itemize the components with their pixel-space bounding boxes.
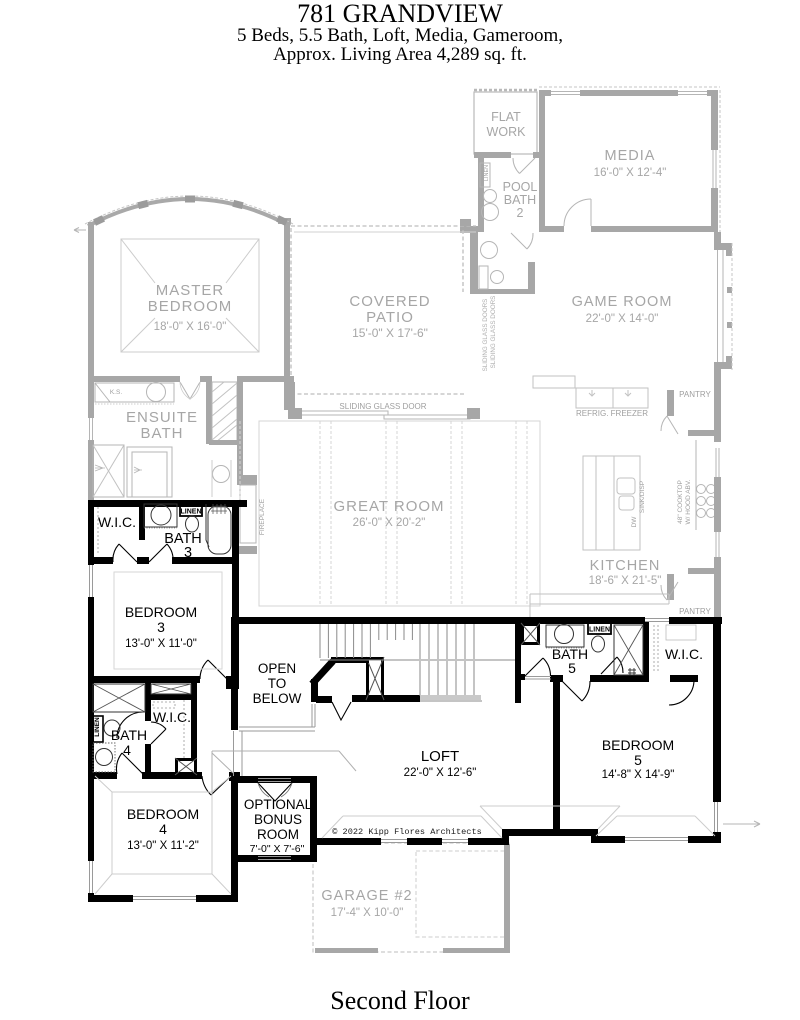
svg-text:BONUS: BONUS xyxy=(254,812,302,827)
svg-text:BEDROOM: BEDROOM xyxy=(148,298,233,315)
svg-text:22'-0" X 12'-6": 22'-0" X 12'-6" xyxy=(404,767,477,779)
svg-text:PANTRY: PANTRY xyxy=(679,390,711,399)
svg-text:BEDROOM: BEDROOM xyxy=(602,737,674,753)
svg-text:5: 5 xyxy=(634,752,642,768)
svg-text:SLIDING GLASS DOORS: SLIDING GLASS DOORS xyxy=(482,299,489,372)
svg-text:5 Beds, 5.5 Bath, Loft, Media,: 5 Beds, 5.5 Bath, Loft, Media, Gameroom, xyxy=(237,25,563,46)
svg-text:16'-0" X 12'-4": 16'-0" X 12'-4" xyxy=(594,167,667,179)
svg-text:OPTIONAL: OPTIONAL xyxy=(244,797,313,812)
svg-text:13'-0" X 11'-0": 13'-0" X 11'-0" xyxy=(125,638,197,650)
svg-text:BATH: BATH xyxy=(141,425,184,442)
svg-text:SLIDING GLASS DOORS: SLIDING GLASS DOORS xyxy=(490,296,497,369)
svg-text:26'-0" X 20'-2": 26'-0" X 20'-2" xyxy=(353,517,426,529)
svg-text:2: 2 xyxy=(517,206,524,220)
svg-text:W.I.C.: W.I.C. xyxy=(665,646,703,662)
svg-text:GREAT ROOM: GREAT ROOM xyxy=(333,498,444,515)
svg-text:SLIDING GLASS DOOR: SLIDING GLASS DOOR xyxy=(339,402,426,411)
svg-text:LINEN: LINEN xyxy=(94,717,101,737)
svg-text:4: 4 xyxy=(123,742,131,758)
svg-text:KITCHEN: KITCHEN xyxy=(590,558,661,574)
svg-text:ROOM: ROOM xyxy=(257,827,299,842)
svg-text:GARAGE #2: GARAGE #2 xyxy=(321,888,412,904)
svg-text:OPEN: OPEN xyxy=(258,661,296,676)
svg-text:W/ HOOD ABV.: W/ HOOD ABV. xyxy=(685,479,692,524)
svg-text:5: 5 xyxy=(568,660,576,676)
svg-text:BEDROOM: BEDROOM xyxy=(125,604,197,620)
svg-text:COVERED: COVERED xyxy=(349,293,430,310)
svg-text:18'-6" X 21'-5": 18'-6" X 21'-5" xyxy=(589,575,662,587)
svg-text:14'-8" X 14'-9": 14'-8" X 14'-9" xyxy=(602,769,675,781)
svg-text:WORK: WORK xyxy=(487,125,527,139)
svg-text:LINEN: LINEN xyxy=(181,509,202,516)
svg-text:GAME ROOM: GAME ROOM xyxy=(572,294,673,310)
svg-text:MEDIA: MEDIA xyxy=(605,148,656,164)
svg-text:DW: DW xyxy=(631,516,638,528)
svg-text:22'-0" X 14'-0": 22'-0" X 14'-0" xyxy=(586,313,659,325)
svg-text:3: 3 xyxy=(157,619,165,635)
svg-text:LINEN: LINEN xyxy=(484,165,490,181)
svg-text:ENSUITE: ENSUITE xyxy=(126,409,198,426)
svg-text:17'-4" X 10'-0": 17'-4" X 10'-0" xyxy=(331,907,404,919)
svg-text:Approx. Living Area 4,289 sq.: Approx. Living Area 4,289 sq. ft. xyxy=(273,44,527,65)
svg-text:REFRIG. FREEZER: REFRIG. FREEZER xyxy=(576,409,648,418)
svg-text:BATH: BATH xyxy=(504,193,536,207)
svg-text:BEDROOM: BEDROOM xyxy=(127,806,199,822)
svg-text:PATIO: PATIO xyxy=(366,309,414,326)
svg-text:781 GRANDVIEW: 781 GRANDVIEW xyxy=(297,0,503,28)
svg-text:LOFT: LOFT xyxy=(421,748,459,765)
svg-text:15'-0" X 17'-6": 15'-0" X 17'-6" xyxy=(352,326,428,340)
svg-text:© 2022 Kipp Flores Architects: © 2022 Kipp Flores Architects xyxy=(332,827,482,837)
svg-text:7'-0" X 7'-6": 7'-0" X 7'-6" xyxy=(250,843,305,855)
svg-text:18'-0" X 16'-0": 18'-0" X 16'-0" xyxy=(154,321,227,333)
svg-text:PANTRY: PANTRY xyxy=(679,607,711,616)
svg-text:K.S.: K.S. xyxy=(110,389,122,396)
svg-text:13'-0" X 11'-2": 13'-0" X 11'-2" xyxy=(127,840,199,852)
svg-text:48" COOKTOP: 48" COOKTOP xyxy=(677,480,684,524)
svg-text:4: 4 xyxy=(159,821,167,837)
svg-text:FIREPLACE: FIREPLACE xyxy=(259,498,266,535)
svg-text:POOL: POOL xyxy=(503,180,538,194)
svg-text:TO: TO xyxy=(268,676,287,691)
svg-text:LINEN: LINEN xyxy=(589,627,610,634)
svg-text:3: 3 xyxy=(184,545,192,561)
svg-text:BELOW: BELOW xyxy=(253,691,302,706)
svg-text:W.I.C.: W.I.C. xyxy=(153,709,191,725)
svg-text:SINK/DISP: SINK/DISP xyxy=(639,481,646,513)
svg-text:MASTER: MASTER xyxy=(156,282,225,299)
svg-text:W.I.C.: W.I.C. xyxy=(98,514,136,530)
svg-text:Second Floor: Second Floor xyxy=(330,986,470,1015)
svg-text:FLAT: FLAT xyxy=(491,110,521,124)
svg-text:BATH: BATH xyxy=(111,727,147,743)
